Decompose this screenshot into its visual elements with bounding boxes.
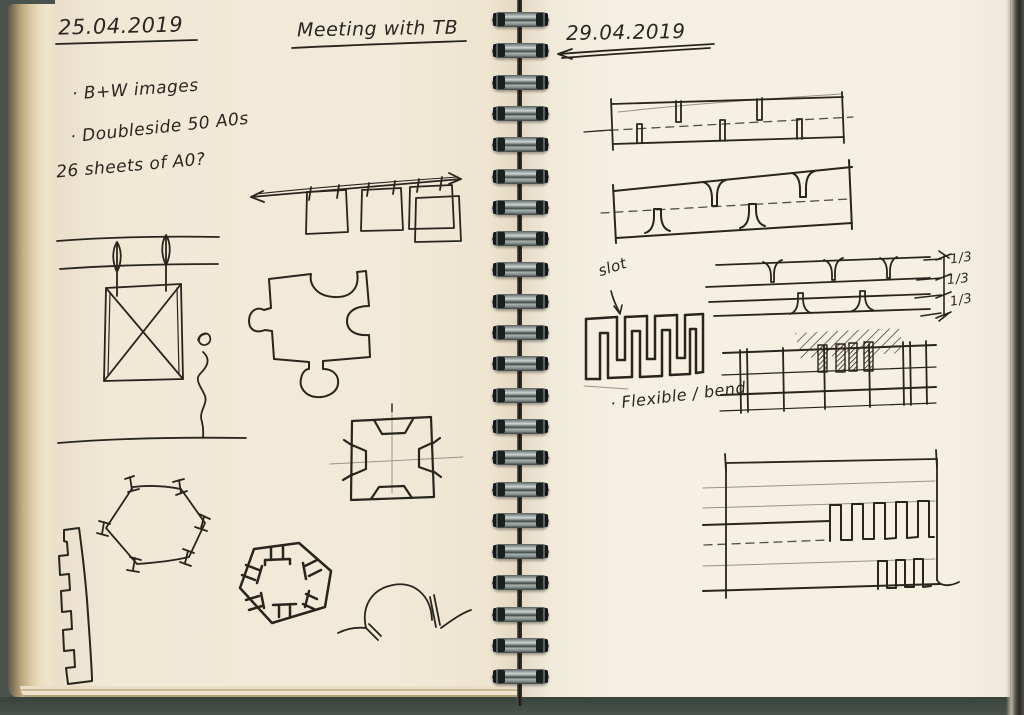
fraction-third-2: 1/3 [946,271,970,288]
binding-ring [492,12,549,27]
binding-ring [492,638,549,653]
sketch-hexagon-tabs [97,476,210,572]
sketch-comb-slot [586,291,703,379]
scanned-notebook: { "notebook": { "left_page": { "date": "… [0,0,1024,715]
binding-ring [492,137,549,152]
sketch-hexagon-t-slots [240,543,331,623]
sketch-slotted-strip-1 [584,92,844,150]
binding-ring [492,200,549,215]
binding-ring [492,294,549,309]
binding-ring [492,43,549,58]
binding-ring [492,513,549,528]
binding-ring [492,575,549,590]
binding-ring [492,356,549,371]
sketch-stand-doodle [58,333,246,443]
binding-ring [492,169,549,184]
meeting-title: Meeting with TB [297,17,459,42]
binding-ring [492,75,549,90]
binding-ring [492,325,549,340]
sketch-hatched-band [720,328,936,413]
sketch-puzzle-piece [249,271,370,397]
binding-ring [492,262,549,277]
sketch-finger-joint-panel [703,450,959,598]
spiral-binding [492,0,550,715]
binding-ring [492,419,549,434]
binding-ring [492,388,549,403]
sketch-hanging-frame [57,235,219,381]
right-page-date: 29.04.2019 [566,19,686,45]
sketch-arch-blob [338,584,471,640]
fraction-third-1: 1/3 [949,250,973,268]
binding-ring [492,231,549,246]
binding-ring [492,607,549,622]
sketch-slotted-strip-3 [706,257,930,316]
sketch-notched-strip [59,528,92,684]
sketch-arrow-rail [251,173,461,242]
binding-ring [492,544,549,559]
binding-ring [492,450,549,465]
binding-ring [492,106,549,121]
left-page-date: 25.04.2019 [58,12,184,39]
binding-ring [492,669,549,684]
binding-ring [492,482,549,497]
sketch-dimension-thirds [915,251,951,321]
